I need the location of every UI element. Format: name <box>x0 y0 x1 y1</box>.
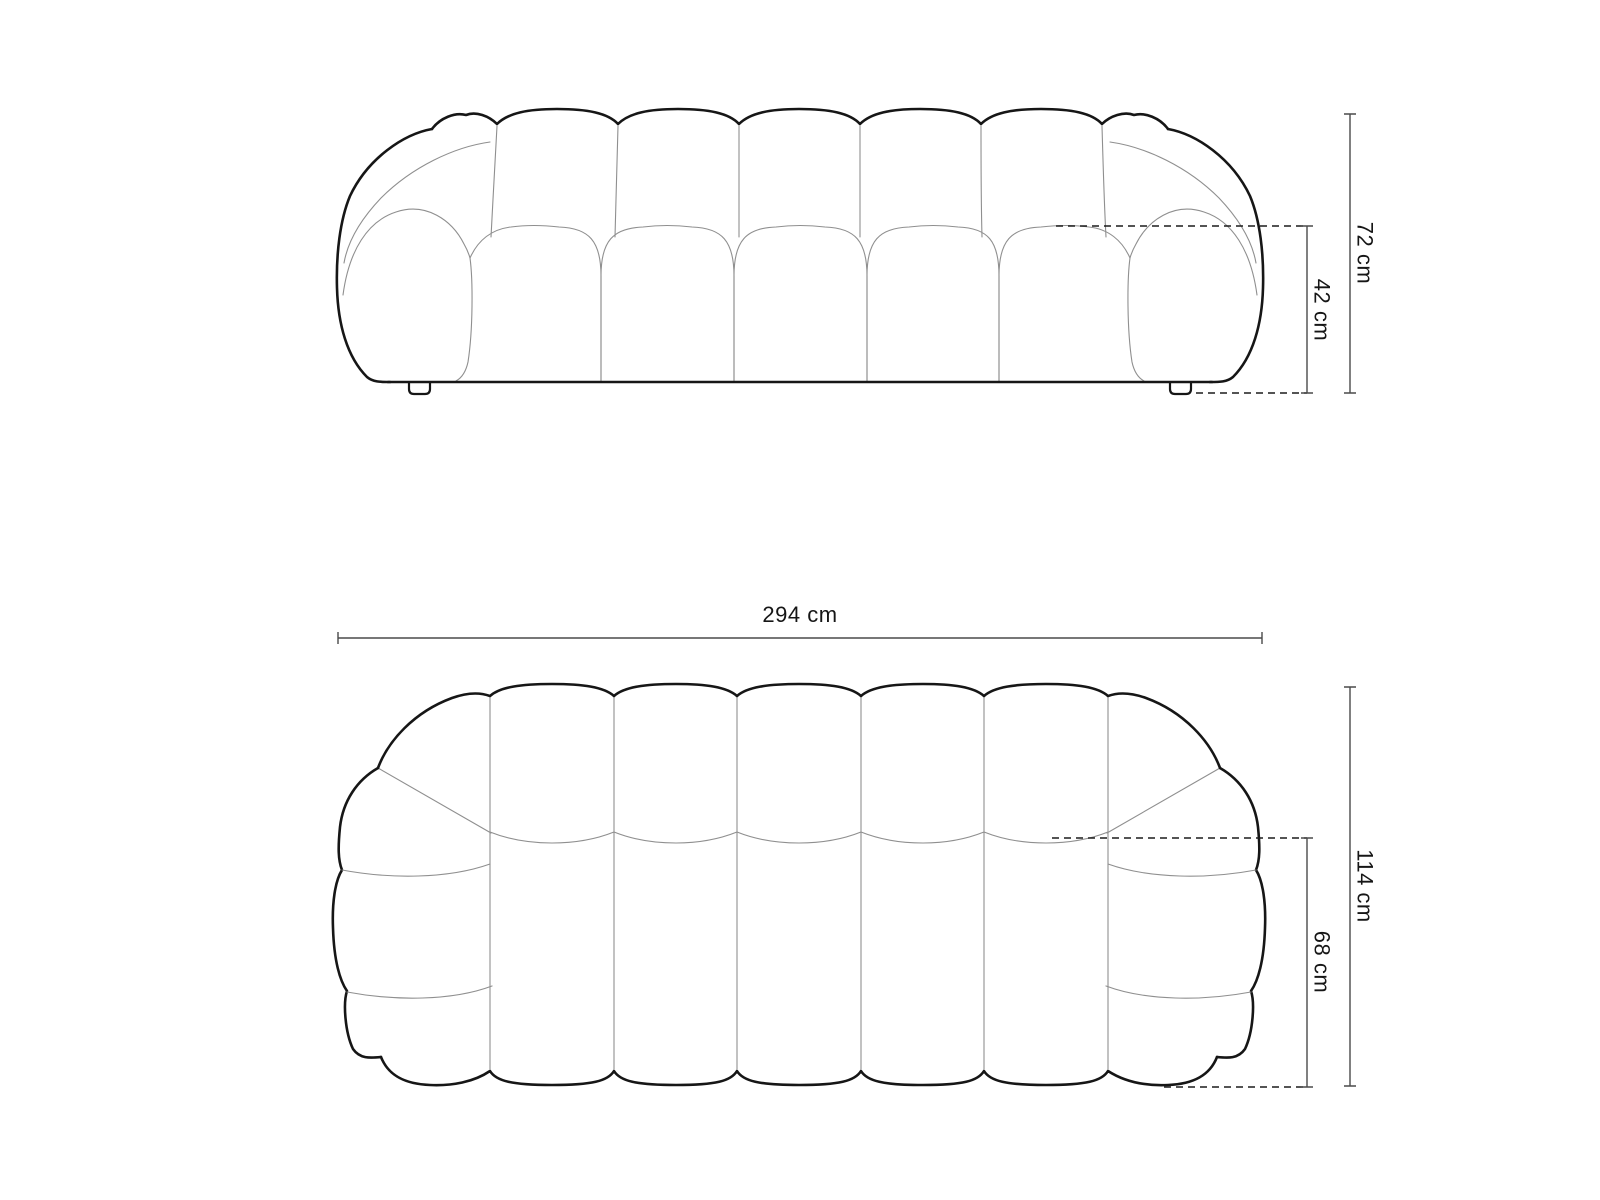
plan-seatback-line <box>490 832 1108 843</box>
plan-total-depth-dimension: 114 cm <box>1344 687 1377 1086</box>
front-right-foot <box>1170 383 1191 394</box>
front-seat-cushions <box>470 226 1130 382</box>
total-depth-label: 114 cm <box>1352 849 1377 923</box>
front-total-height-dimension: 72 cm <box>1344 114 1377 393</box>
plan-left-arm <box>333 768 492 1058</box>
front-back-cushions-outline <box>432 109 1168 129</box>
plan-front-edge <box>381 1057 1217 1085</box>
plan-back-edge <box>378 684 1220 768</box>
front-elevation-view: 42 cm 72 cm <box>337 109 1377 394</box>
plan-left-corner-diagonal <box>378 768 491 833</box>
plan-channel-dividers <box>490 697 1108 1069</box>
plan-right-arm <box>1106 768 1265 1058</box>
front-back-cushion-dividers <box>491 126 1106 237</box>
total-height-label: 72 cm <box>1352 222 1377 284</box>
front-left-foot <box>409 383 430 394</box>
front-feet <box>409 383 1191 394</box>
front-right-arm <box>1110 129 1263 382</box>
sofa-dimension-diagram: 42 cm 72 cm 294 cm <box>0 0 1600 1200</box>
front-left-arm <box>337 129 490 382</box>
plan-total-width-dimension: 294 cm <box>338 602 1262 644</box>
plan-right-corner-diagonal <box>1107 768 1220 833</box>
front-seat-height-dimension: 42 cm <box>1301 226 1334 393</box>
plan-seat-depth-dimension: 68 cm <box>1301 838 1334 1087</box>
total-width-label: 294 cm <box>762 602 837 627</box>
top-plan-view: 294 cm <box>333 602 1377 1087</box>
seat-depth-label: 68 cm <box>1309 931 1334 993</box>
diagram-svg: 42 cm 72 cm 294 cm <box>0 0 1600 1200</box>
seat-height-label: 42 cm <box>1309 279 1334 341</box>
